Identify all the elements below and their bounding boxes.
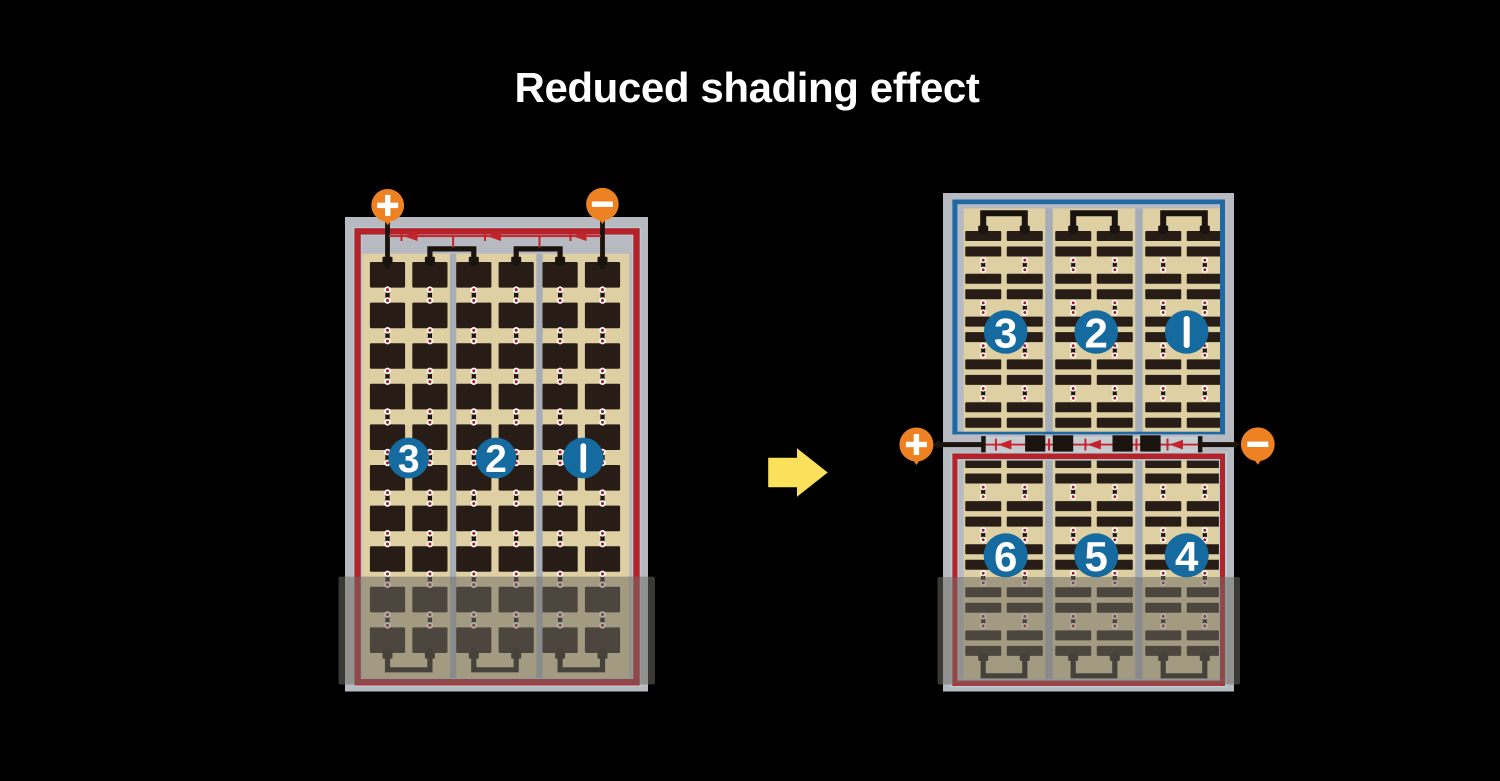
svg-text:2: 2 [1085,310,1108,357]
svg-text:3: 3 [398,438,420,481]
svg-text:4: 4 [1175,533,1199,580]
svg-text:6: 6 [994,533,1017,580]
svg-text:2: 2 [485,438,507,481]
svg-text:3: 3 [994,310,1017,357]
svg-text:5: 5 [1085,533,1108,580]
